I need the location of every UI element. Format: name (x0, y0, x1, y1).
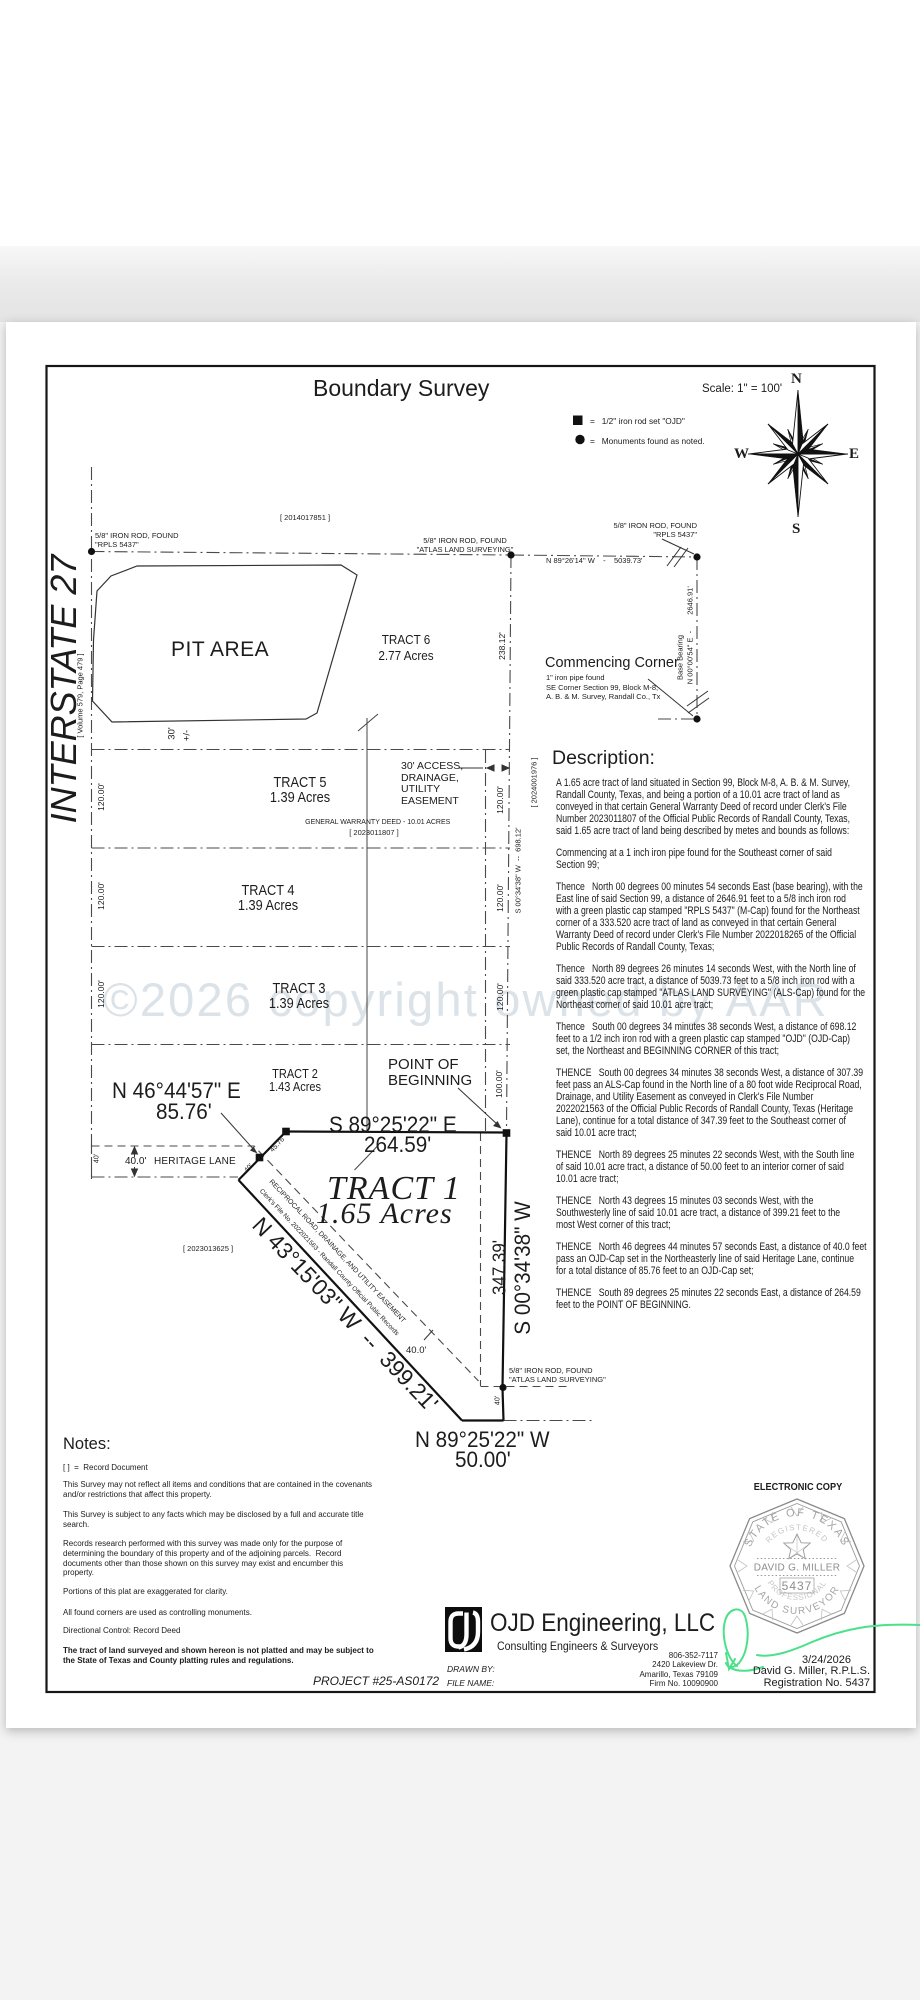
svg-text:5437: 5437 (782, 1579, 813, 1593)
svg-text:DAVID G. MILLER: DAVID G. MILLER (754, 1563, 841, 1574)
